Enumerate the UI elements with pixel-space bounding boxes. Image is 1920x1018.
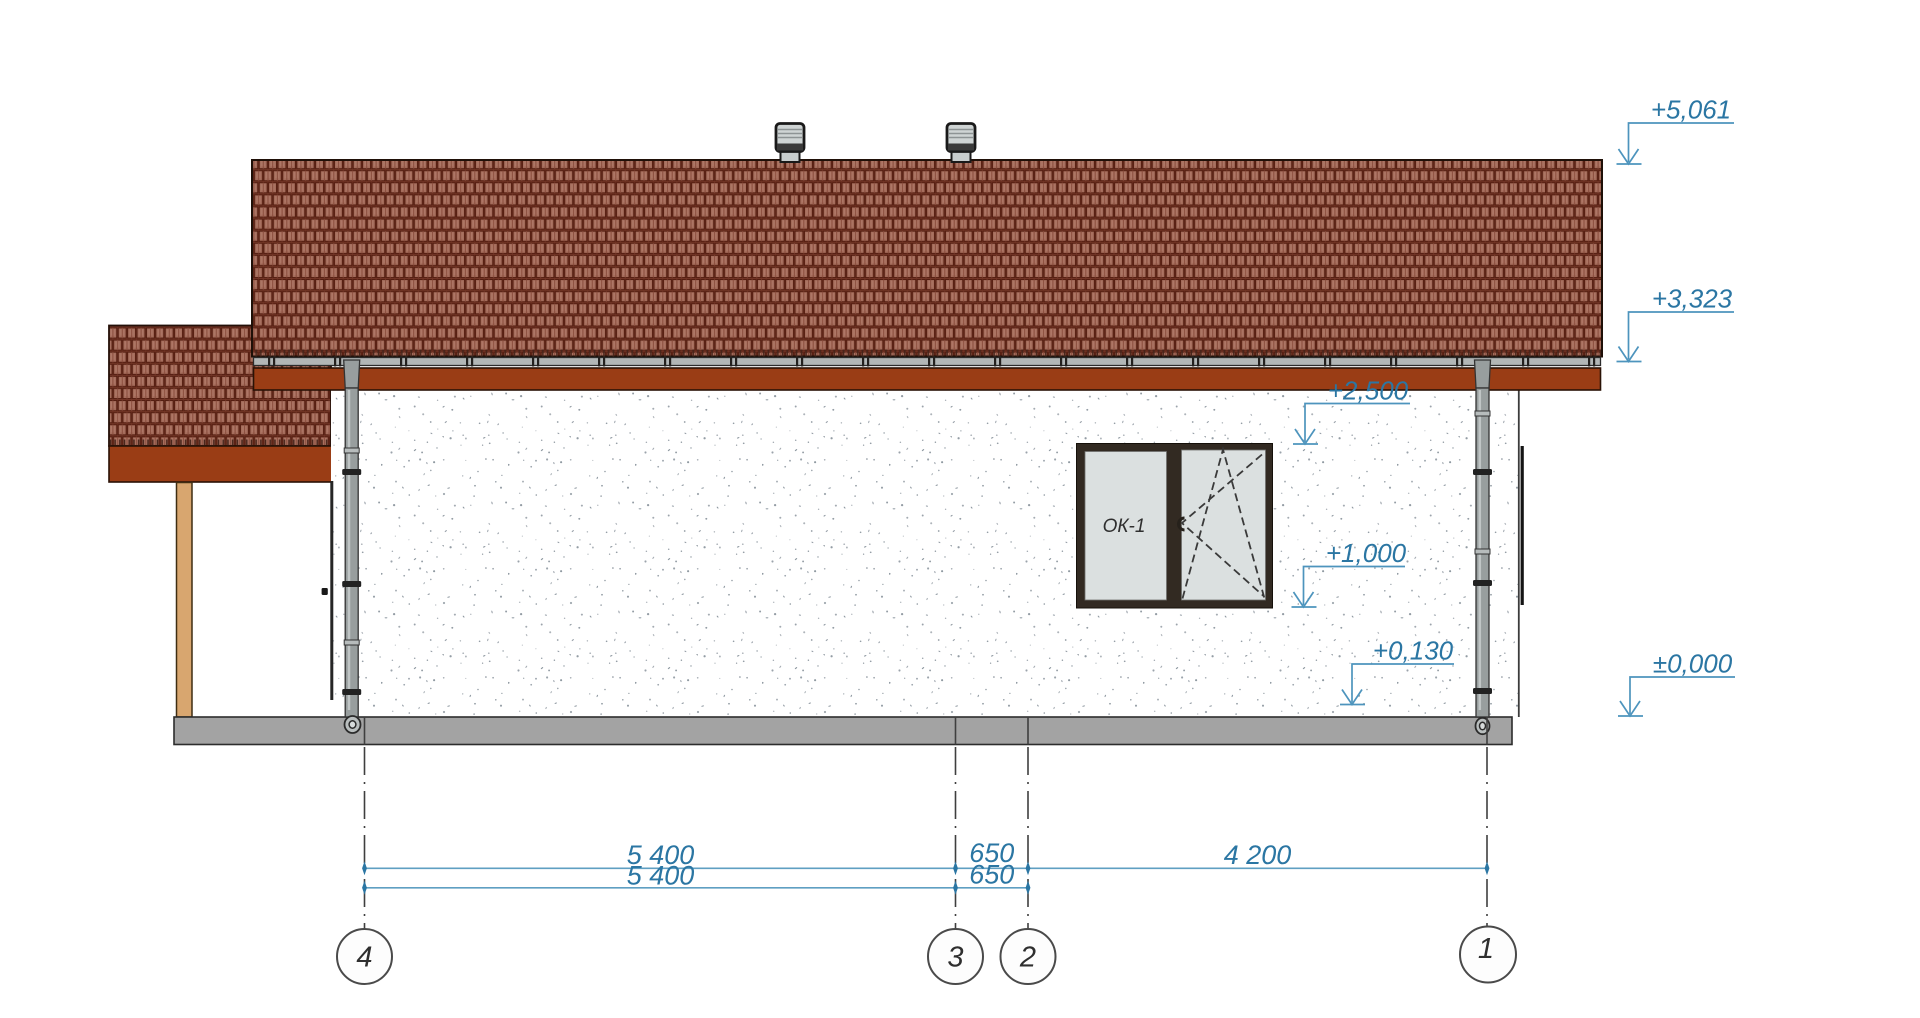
svg-text:1: 1: [1478, 933, 1494, 965]
svg-text:650: 650: [969, 860, 1014, 890]
svg-text:+3,323: +3,323: [1652, 284, 1733, 314]
svg-text:+5,061: +5,061: [1651, 95, 1731, 125]
svg-text:2: 2: [1019, 942, 1036, 974]
svg-text:4: 4: [356, 942, 372, 974]
svg-text:3: 3: [947, 942, 963, 974]
svg-text:ОК-1: ОК-1: [1103, 516, 1146, 537]
svg-text:+1,000: +1,000: [1326, 538, 1407, 568]
svg-text:±0,000: ±0,000: [1653, 649, 1733, 679]
svg-text:+2,500: +2,500: [1328, 376, 1409, 406]
svg-text:5 400: 5 400: [627, 861, 695, 891]
svg-text:+0,130: +0,130: [1373, 636, 1454, 666]
svg-text:4 200: 4 200: [1224, 840, 1292, 870]
